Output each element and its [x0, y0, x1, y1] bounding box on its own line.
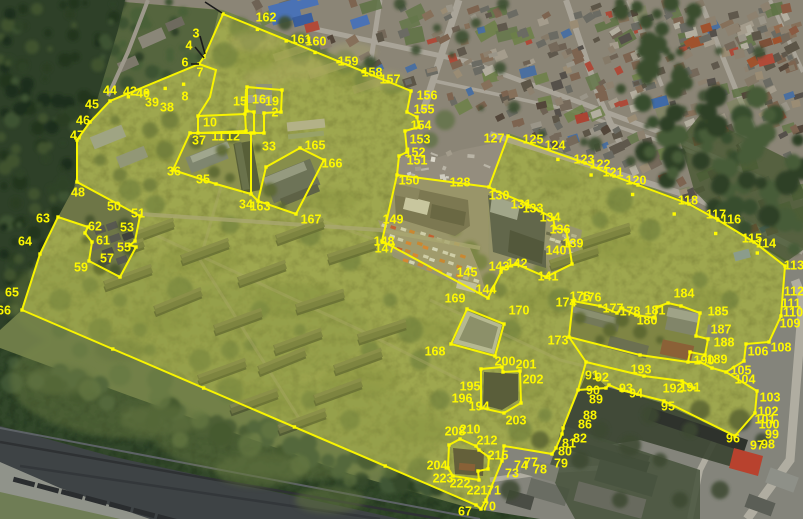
- svg-text:185: 185: [708, 305, 729, 319]
- svg-text:150: 150: [399, 174, 420, 188]
- svg-text:204: 204: [427, 459, 448, 473]
- svg-text:53: 53: [120, 221, 134, 235]
- svg-text:163: 163: [250, 200, 271, 214]
- svg-text:88: 88: [583, 409, 597, 423]
- svg-text:136: 136: [550, 223, 571, 237]
- svg-text:82: 82: [573, 432, 587, 446]
- svg-text:109: 109: [780, 317, 801, 331]
- svg-text:120: 120: [626, 174, 647, 188]
- svg-text:169: 169: [445, 292, 466, 306]
- svg-text:35: 35: [196, 173, 210, 187]
- svg-text:130: 130: [489, 189, 510, 203]
- svg-text:160: 160: [306, 35, 327, 49]
- svg-text:39: 39: [145, 96, 159, 110]
- svg-text:94: 94: [629, 387, 643, 401]
- svg-text:103: 103: [760, 391, 781, 405]
- svg-text:7: 7: [197, 66, 204, 80]
- svg-text:59: 59: [74, 261, 88, 275]
- svg-text:57: 57: [100, 252, 114, 266]
- svg-text:140: 140: [546, 244, 567, 258]
- svg-text:113: 113: [784, 259, 803, 273]
- svg-text:45: 45: [85, 98, 99, 112]
- svg-text:96: 96: [726, 432, 740, 446]
- svg-text:188: 188: [714, 336, 735, 350]
- svg-text:42: 42: [123, 85, 137, 99]
- svg-text:159: 159: [338, 55, 359, 69]
- svg-text:61: 61: [96, 234, 110, 248]
- svg-text:166: 166: [322, 157, 343, 171]
- svg-text:193: 193: [631, 363, 652, 377]
- svg-text:6: 6: [182, 56, 189, 70]
- svg-text:212: 212: [477, 434, 498, 448]
- svg-text:127: 127: [484, 132, 505, 146]
- svg-text:118: 118: [678, 194, 698, 208]
- svg-text:10: 10: [203, 116, 217, 130]
- svg-text:70: 70: [482, 500, 496, 514]
- svg-text:153: 153: [410, 133, 431, 147]
- svg-text:65: 65: [5, 286, 19, 300]
- svg-text:151: 151: [407, 154, 428, 168]
- svg-text:187: 187: [711, 323, 732, 337]
- svg-text:71: 71: [487, 484, 501, 498]
- svg-text:90: 90: [586, 384, 600, 398]
- svg-text:145: 145: [457, 266, 478, 280]
- svg-text:121: 121: [603, 166, 624, 180]
- svg-text:194: 194: [469, 400, 490, 414]
- svg-text:142: 142: [507, 257, 528, 271]
- svg-text:189: 189: [707, 353, 728, 367]
- svg-text:47: 47: [70, 129, 84, 143]
- svg-text:202: 202: [523, 373, 544, 387]
- svg-text:106: 106: [748, 345, 769, 359]
- svg-text:92: 92: [595, 371, 609, 385]
- svg-text:95: 95: [661, 400, 675, 414]
- svg-text:154: 154: [411, 119, 432, 133]
- svg-text:78: 78: [533, 463, 547, 477]
- svg-text:16: 16: [252, 93, 266, 107]
- svg-text:223: 223: [433, 472, 454, 486]
- svg-text:50: 50: [107, 200, 121, 214]
- svg-text:143: 143: [489, 260, 510, 274]
- svg-text:128: 128: [450, 176, 471, 190]
- svg-text:67: 67: [458, 505, 472, 519]
- svg-text:55: 55: [117, 241, 131, 255]
- svg-text:173: 173: [548, 334, 569, 348]
- svg-text:156: 156: [417, 89, 438, 103]
- svg-text:116: 116: [721, 213, 741, 227]
- svg-text:4: 4: [186, 39, 193, 53]
- svg-text:192: 192: [663, 382, 684, 396]
- svg-text:167: 167: [301, 213, 322, 227]
- svg-text:144: 144: [476, 283, 497, 297]
- svg-text:3: 3: [193, 27, 200, 41]
- svg-text:200: 200: [495, 355, 516, 369]
- svg-text:12: 12: [226, 130, 240, 144]
- svg-text:147: 147: [375, 242, 396, 256]
- svg-text:46: 46: [76, 114, 90, 128]
- svg-text:66: 66: [0, 304, 11, 318]
- svg-text:155: 155: [414, 103, 435, 117]
- svg-text:108: 108: [771, 341, 792, 355]
- svg-text:157: 157: [380, 73, 401, 87]
- svg-text:62: 62: [88, 220, 102, 234]
- svg-text:114: 114: [756, 237, 776, 251]
- svg-text:141: 141: [538, 270, 559, 284]
- svg-text:64: 64: [18, 235, 32, 249]
- svg-text:201: 201: [516, 358, 537, 372]
- svg-text:44: 44: [103, 84, 117, 98]
- svg-text:149: 149: [383, 213, 404, 227]
- svg-text:48: 48: [71, 186, 85, 200]
- svg-text:203: 203: [506, 414, 527, 428]
- svg-text:8: 8: [182, 90, 189, 104]
- svg-text:181: 181: [645, 304, 666, 318]
- svg-text:36: 36: [167, 165, 181, 179]
- svg-text:170: 170: [509, 304, 530, 318]
- svg-text:215: 215: [488, 449, 509, 463]
- svg-text:104: 104: [735, 373, 756, 387]
- svg-text:97: 97: [750, 439, 764, 453]
- svg-text:51: 51: [131, 207, 145, 221]
- svg-text:38: 38: [160, 101, 174, 115]
- svg-text:124: 124: [545, 139, 566, 153]
- svg-text:79: 79: [554, 457, 568, 471]
- svg-text:168: 168: [425, 345, 446, 359]
- svg-text:37: 37: [192, 134, 206, 148]
- svg-text:33: 33: [262, 140, 276, 154]
- svg-text:63: 63: [36, 212, 50, 226]
- svg-text:162: 162: [256, 11, 277, 25]
- svg-text:15: 15: [233, 95, 247, 109]
- svg-text:11: 11: [211, 130, 224, 144]
- svg-text:125: 125: [523, 133, 544, 147]
- svg-text:184: 184: [674, 287, 695, 301]
- svg-text:2: 2: [272, 106, 279, 120]
- svg-text:176: 176: [581, 291, 602, 305]
- svg-text:165: 165: [305, 139, 326, 153]
